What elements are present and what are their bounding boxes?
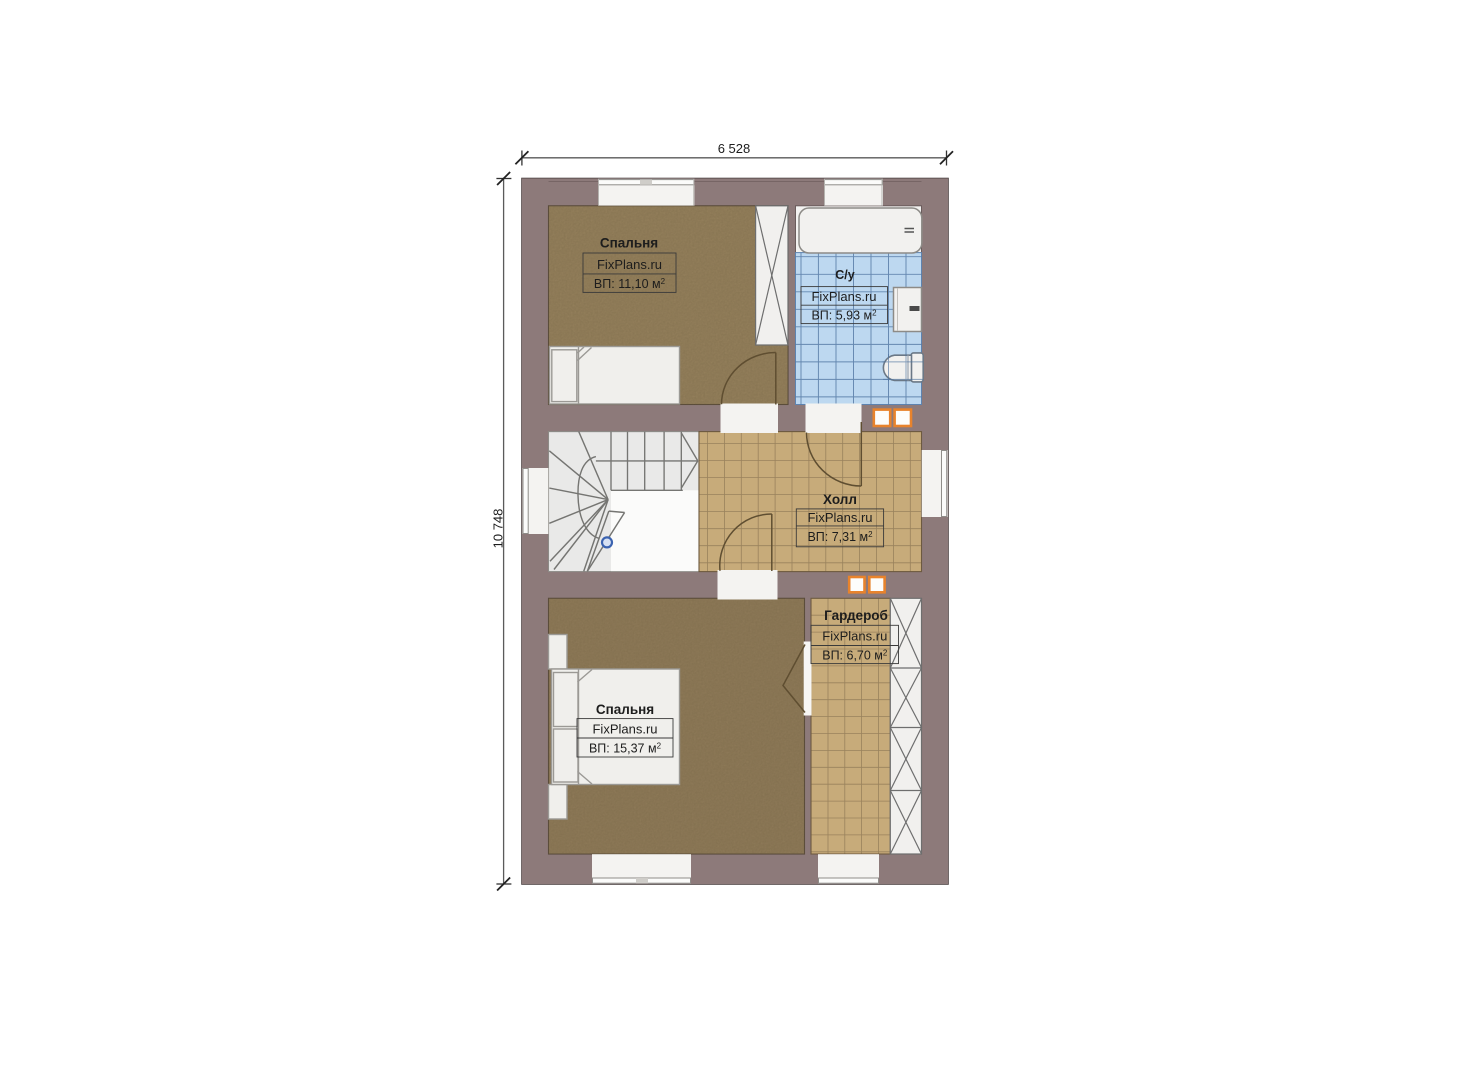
svg-text:FixPlans.ru: FixPlans.ru [822, 629, 887, 644]
svg-text:ВП: 11,10 м2: ВП: 11,10 м2 [594, 277, 666, 291]
svg-text:Спальня: Спальня [596, 702, 654, 717]
svg-text:ВП: 6,70 м2: ВП: 6,70 м2 [822, 649, 888, 663]
svg-text:Спальня: Спальня [600, 236, 658, 251]
svg-text:С/у: С/у [835, 268, 855, 282]
svg-text:Гардероб: Гардероб [824, 608, 888, 623]
svg-text:FixPlans.ru: FixPlans.ru [807, 510, 872, 525]
svg-text:6 528: 6 528 [718, 141, 751, 156]
svg-text:ВП: 7,31 м2: ВП: 7,31 м2 [807, 530, 873, 544]
svg-text:FixPlans.ru: FixPlans.ru [811, 289, 876, 304]
svg-text:10 748: 10 748 [490, 509, 505, 549]
svg-text:FixPlans.ru: FixPlans.ru [592, 722, 657, 737]
svg-text:FixPlans.ru: FixPlans.ru [597, 257, 662, 272]
svg-text:Холл: Холл [823, 492, 857, 507]
svg-text:ВП: 15,37 м2: ВП: 15,37 м2 [589, 742, 662, 756]
svg-text:ВП: 5,93 м2: ВП: 5,93 м2 [811, 309, 877, 323]
